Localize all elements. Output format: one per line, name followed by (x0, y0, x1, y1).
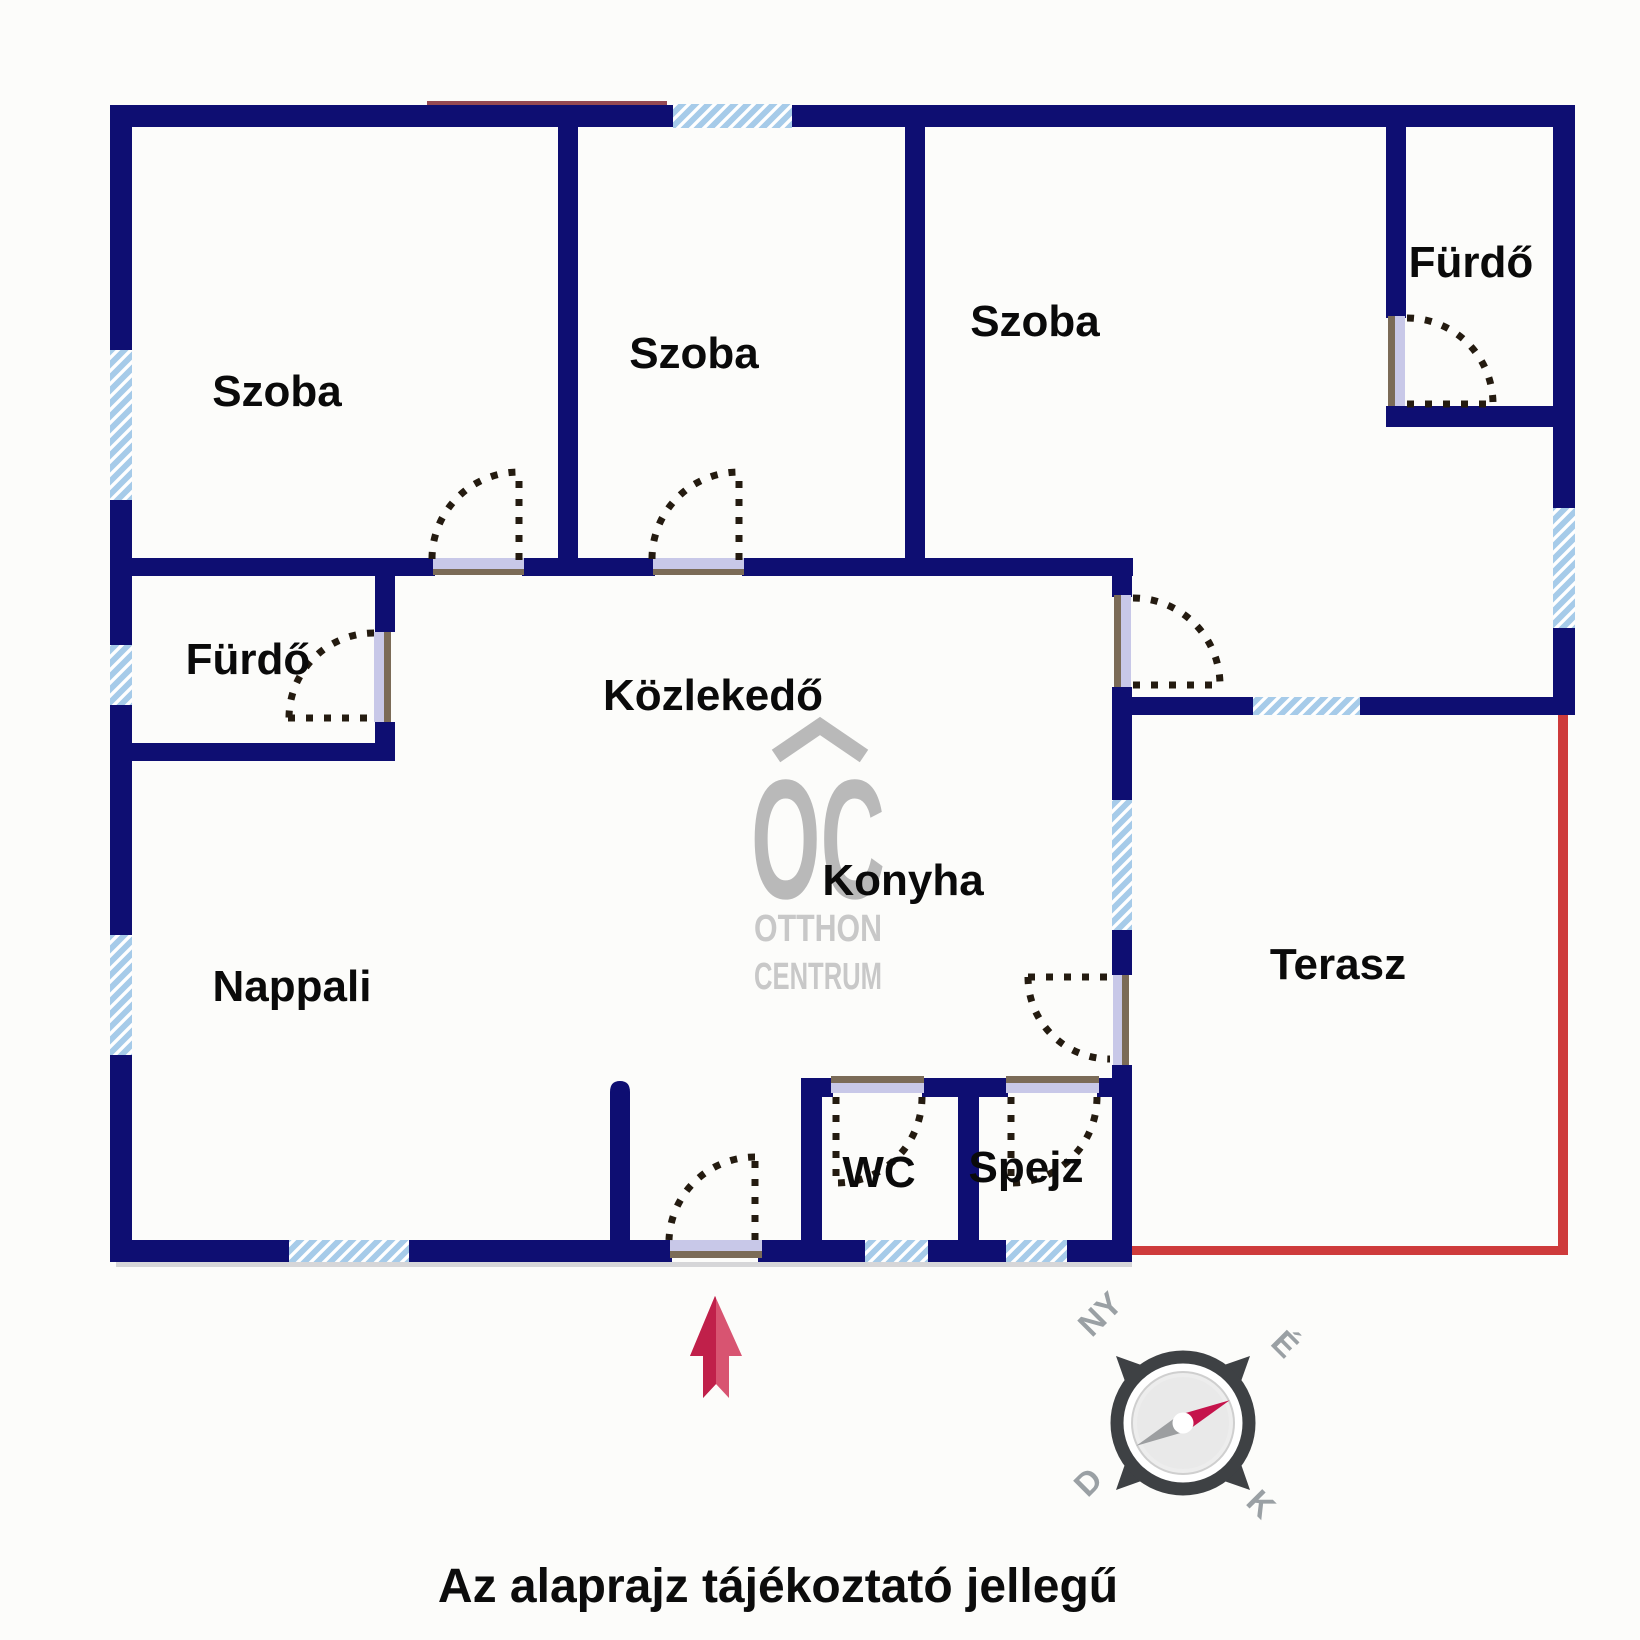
label-szoba-2: Szoba (629, 329, 759, 378)
label-szoba-3: Szoba (970, 297, 1100, 346)
label-furdo-felso: Fürdő (1409, 238, 1534, 287)
disclaimer-caption: Az alaprajz tájékoztató jellegű (438, 1560, 1118, 1613)
label-nappali: Nappali (213, 962, 372, 1011)
watermark-line2: CENTRUM (754, 956, 882, 998)
window-bottom-nappali (289, 1240, 409, 1262)
boundary-right (1558, 715, 1568, 1250)
label-spejz: Spejz (969, 1143, 1084, 1192)
window-konyha-terasz (1112, 800, 1132, 930)
boundary-bottom (1132, 1246, 1568, 1255)
label-wc: WC (842, 1148, 915, 1197)
top-wall-accent-line (427, 101, 667, 105)
watermark-monogram: OC (751, 745, 885, 935)
window-right-szoba3 (1553, 508, 1575, 628)
label-furdo-also: Fürdő (186, 635, 311, 684)
label-terasz: Terasz (1270, 940, 1406, 989)
floorplan-page: OC OTTHON CENTRUM (0, 0, 1640, 1640)
window-bottom-wc (865, 1240, 928, 1262)
window-left-nappali (110, 935, 132, 1055)
label-kozlekedo: Közlekedő (603, 671, 823, 720)
label-konyha: Konyha (822, 856, 984, 905)
window-terasz-wall (1253, 697, 1360, 715)
watermark-line1: OTTHON (754, 908, 882, 950)
window-top-szoba2 (673, 104, 792, 128)
window-left-furdo (110, 645, 132, 705)
window-bottom-spejz (1006, 1240, 1067, 1262)
floorplan-drawing: OC OTTHON CENTRUM (0, 0, 1640, 1640)
label-szoba-1: Szoba (212, 367, 342, 416)
window-left-szoba1 (110, 350, 132, 500)
wall-shadow (116, 1262, 1132, 1267)
